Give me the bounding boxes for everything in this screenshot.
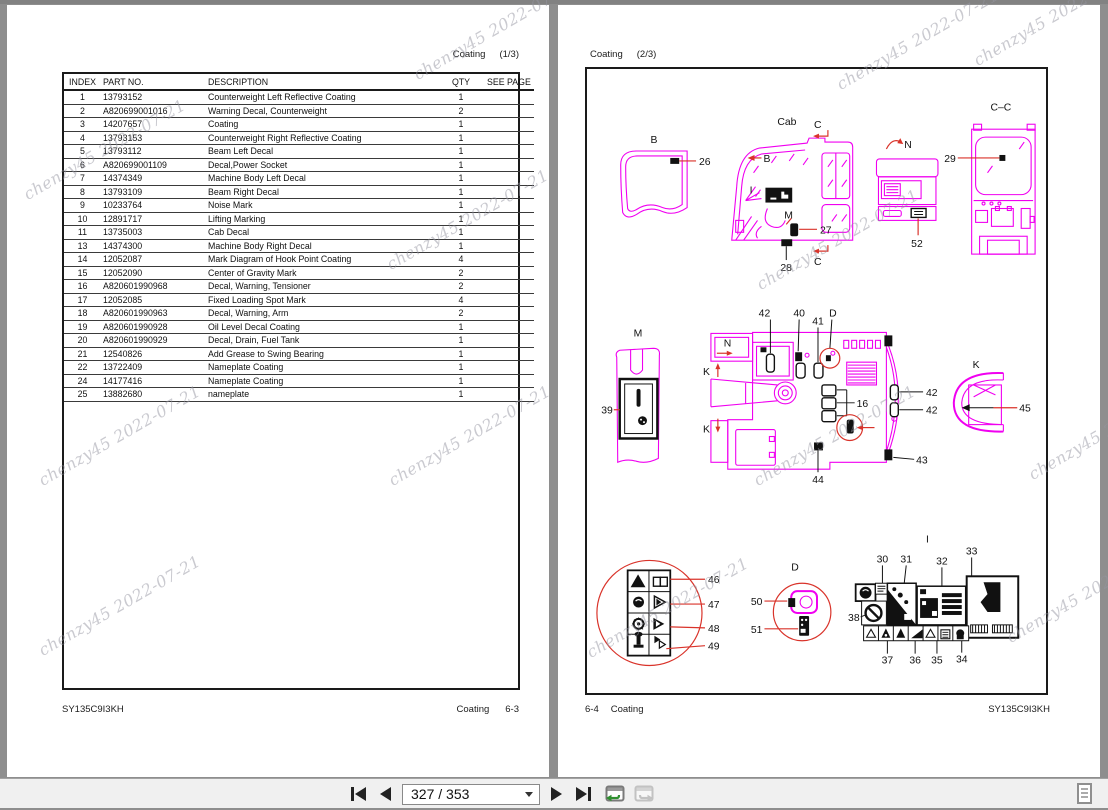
cell-index: 2 (64, 104, 101, 118)
svg-text:37: 37 (882, 656, 894, 667)
cell-qty: 2 (445, 307, 477, 321)
cell-see-page (477, 131, 534, 145)
svg-text:45: 45 (1019, 404, 1031, 415)
svg-text:M: M (784, 210, 793, 221)
cell-part-no: 13793153 (101, 131, 206, 145)
svg-text:K: K (703, 425, 710, 436)
cell-description: Beam Right Decal (206, 185, 445, 199)
svg-text:D: D (829, 309, 837, 320)
cell-description: Decal,Power Socket (206, 158, 445, 172)
cell-see-page (477, 158, 534, 172)
header-sheet-number: (1/3) (499, 49, 519, 60)
svg-text:C: C (814, 120, 822, 131)
cell-index: 25 (64, 388, 101, 402)
svg-text:N: N (904, 140, 912, 151)
cell-part-no: 13793109 (101, 185, 206, 199)
cell-part-no: A820601990929 (101, 334, 206, 348)
cell-see-page (477, 226, 534, 240)
table-row: 5 13793112 Beam Left Decal 1 (64, 145, 534, 159)
table-row: 22 13722409 Nameplate Coating 1 (64, 361, 534, 375)
cell-index: 21 (64, 347, 101, 361)
svg-text:33: 33 (966, 546, 978, 557)
cell-see-page (477, 320, 534, 334)
cell-description: Coating (206, 118, 445, 132)
cell-see-page (477, 266, 534, 280)
table-row: 20 A820601990929 Decal, Drain, Fuel Tank… (64, 334, 534, 348)
view-b-door: B 26 (621, 135, 711, 217)
left-footer-model: SY135C9I3KH (62, 704, 124, 715)
cell-part-no: 14207657 (101, 118, 206, 132)
cell-index: 11 (64, 226, 101, 240)
page-right: Coating(2/3) B 26 Cab (558, 5, 1100, 777)
cell-description: Counterweight Left Reflective Coating (206, 90, 445, 104)
cell-index: 18 (64, 307, 101, 321)
svg-text:K: K (703, 367, 710, 378)
svg-text:K: K (973, 360, 980, 371)
previous-page-button[interactable] (377, 784, 394, 804)
svg-text:51: 51 (751, 625, 763, 636)
svg-text:B: B (763, 154, 770, 165)
previous-view-button[interactable] (603, 785, 625, 804)
cell-description: Add Grease to Swing Bearing (206, 347, 445, 361)
page-number-combobox (402, 784, 540, 805)
view-top-machine: 42 40 41 D (703, 309, 938, 487)
cell-index: 24 (64, 374, 101, 388)
cell-index: 4 (64, 131, 101, 145)
table-row: 17 12052085 Fixed Loading Spot Mark 4 (64, 293, 534, 307)
cell-qty: 1 (445, 334, 477, 348)
svg-text:16: 16 (857, 399, 869, 410)
cell-part-no: 13722409 (101, 361, 206, 375)
svg-text:52: 52 (911, 239, 923, 250)
cell-see-page (477, 118, 534, 132)
cell-qty: 1 (445, 145, 477, 159)
pdf-viewer-canvas: Coating(1/3) INDEX PART NO. DESCRIPTION … (0, 0, 1108, 778)
cell-part-no: 12052085 (101, 293, 206, 307)
svg-text:42: 42 (926, 406, 938, 417)
cell-description: Lifting Marking (206, 212, 445, 226)
svg-text:48: 48 (708, 624, 720, 635)
cell-qty: 1 (445, 347, 477, 361)
cell-part-no: 12052090 (101, 266, 206, 280)
cell-part-no: A820699001016 (101, 104, 206, 118)
svg-text:I: I (926, 535, 929, 546)
cell-qty: 1 (445, 131, 477, 145)
right-footer-section: 6-4Coating (585, 704, 643, 715)
svg-text:41: 41 (812, 316, 824, 327)
cell-see-page (477, 172, 534, 186)
svg-text:32: 32 (936, 556, 948, 567)
cell-description: Machine Body Right Decal (206, 239, 445, 253)
cell-see-page (477, 199, 534, 213)
svg-text:C–C: C–C (990, 102, 1011, 113)
svg-text:N: N (724, 338, 732, 349)
detail-decal-sheet: 46 47 48 49 (597, 560, 720, 665)
cell-index: 13 (64, 239, 101, 253)
cell-qty: 1 (445, 172, 477, 186)
svg-text:38: 38 (848, 613, 860, 624)
svg-text:30: 30 (877, 554, 889, 565)
cell-part-no: 12052087 (101, 253, 206, 267)
detail-d: D 50 51 (751, 562, 831, 640)
table-row: 2 A820699001016 Warning Decal, Counterwe… (64, 104, 534, 118)
document-properties-button[interactable] (1076, 783, 1094, 810)
cell-description: Warning Decal, Counterweight (206, 104, 445, 118)
first-page-icon (351, 787, 354, 801)
table-row: 16 A820601990968 Decal, Warning, Tension… (64, 280, 534, 294)
cell-qty: 1 (445, 388, 477, 402)
cell-part-no: 12540826 (101, 347, 206, 361)
col-part-no: PART NO. (101, 74, 206, 90)
cell-see-page (477, 90, 534, 104)
table-row: 13 14374300 Machine Body Right Decal 1 (64, 239, 534, 253)
view-n-top: N 52 (876, 138, 937, 250)
cell-part-no: 14374349 (101, 172, 206, 186)
parts-table: INDEX PART NO. DESCRIPTION QTY SEE PAGE … (62, 72, 520, 690)
svg-text:27: 27 (820, 225, 832, 236)
cell-description: Mark Diagram of Hook Point Coating (206, 253, 445, 267)
cell-qty: 1 (445, 374, 477, 388)
cell-see-page (477, 334, 534, 348)
page-navigation (348, 782, 656, 806)
cell-description: Machine Body Left Decal (206, 172, 445, 186)
col-description: DESCRIPTION (206, 74, 445, 90)
cell-description: Center of Gravity Mark (206, 266, 445, 280)
table-row: 6 A820699001109 Decal,Power Socket 1 (64, 158, 534, 172)
detail-k: K 45 (954, 360, 1031, 431)
table-row: 4 13793153 Counterweight Right Reflectiv… (64, 131, 534, 145)
cell-qty: 1 (445, 226, 477, 240)
table-row: 14 12052087 Mark Diagram of Hook Point C… (64, 253, 534, 267)
svg-text:34: 34 (956, 655, 968, 666)
cell-qty: 1 (445, 320, 477, 334)
svg-text:49: 49 (708, 642, 720, 653)
parts-diagram-svg: B 26 Cab (587, 69, 1046, 693)
cell-see-page (477, 239, 534, 253)
cell-see-page (477, 347, 534, 361)
col-see-page: SEE PAGE (477, 74, 534, 90)
cell-part-no: 14374300 (101, 239, 206, 253)
view-c-c: C–C 29 (944, 102, 1035, 254)
cell-qty: 1 (445, 212, 477, 226)
svg-text:28: 28 (780, 263, 792, 274)
cell-index: 1 (64, 90, 101, 104)
cell-qty: 1 (445, 118, 477, 132)
cell-part-no: 13735003 (101, 226, 206, 240)
cell-index: 10 (64, 212, 101, 226)
cell-description: Beam Left Decal (206, 145, 445, 159)
header-section-label: Coating (590, 49, 623, 60)
cell-qty: 1 (445, 90, 477, 104)
cell-index: 15 (64, 266, 101, 280)
left-page-header: Coating(1/3) (453, 49, 519, 60)
next-view-icon (634, 785, 656, 804)
cell-qty: 1 (445, 158, 477, 172)
cell-description: nameplate (206, 388, 445, 402)
cell-index: 8 (64, 185, 101, 199)
cell-description: Decal, Drain, Fuel Tank (206, 334, 445, 348)
svg-text:43: 43 (916, 455, 928, 466)
cell-part-no: 13793112 (101, 145, 206, 159)
cell-description: Decal, Warning, Arm (206, 307, 445, 321)
svg-text:C: C (814, 257, 822, 268)
next-view-button[interactable] (634, 785, 656, 804)
table-row: 21 12540826 Add Grease to Swing Bearing … (64, 347, 534, 361)
col-index: INDEX (64, 74, 101, 90)
cell-description: Noise Mark (206, 199, 445, 213)
cell-qty: 2 (445, 280, 477, 294)
table-row: 24 14177416 Nameplate Coating 1 (64, 374, 534, 388)
last-page-button[interactable] (573, 784, 594, 804)
svg-text:B: B (650, 135, 657, 146)
cell-qty: 2 (445, 266, 477, 280)
last-page-icon (576, 787, 587, 801)
cell-qty: 1 (445, 239, 477, 253)
cell-see-page (477, 374, 534, 388)
table-row: 18 A820601990963 Decal, Warning, Arm 2 (64, 307, 534, 321)
svg-text:40: 40 (793, 309, 805, 320)
svg-text:31: 31 (900, 554, 912, 565)
cell-index: 14 (64, 253, 101, 267)
next-page-button[interactable] (548, 784, 565, 804)
cell-part-no: A820601990968 (101, 280, 206, 294)
svg-text:39: 39 (601, 406, 613, 417)
cell-see-page (477, 280, 534, 294)
right-footer-model: SY135C9I3KH (988, 704, 1050, 715)
table-row: 3 14207657 Coating 1 (64, 118, 534, 132)
svg-text:42: 42 (926, 388, 938, 399)
page-dropdown-caret-icon[interactable] (525, 792, 533, 797)
cell-see-page (477, 104, 534, 118)
left-footer-page-number: 6-3 (505, 704, 519, 715)
right-page-header: Coating(2/3) (590, 49, 656, 60)
cell-description: Fixed Loading Spot Mark (206, 293, 445, 307)
cell-index: 3 (64, 118, 101, 132)
cell-index: 6 (64, 158, 101, 172)
table-row: 7 14374349 Machine Body Left Decal 1 (64, 172, 534, 186)
cell-see-page (477, 185, 534, 199)
cell-description: Nameplate Coating (206, 374, 445, 388)
table-row: 11 13735003 Cab Decal 1 (64, 226, 534, 240)
cell-index: 22 (64, 361, 101, 375)
view-cab: Cab B (732, 117, 853, 274)
svg-text:35: 35 (931, 656, 943, 667)
cell-description: Cab Decal (206, 226, 445, 240)
svg-text:44: 44 (812, 475, 824, 486)
cell-part-no: A820699001109 (101, 158, 206, 172)
svg-text:36: 36 (909, 656, 921, 667)
previous-view-icon (603, 785, 625, 804)
cell-index: 5 (64, 145, 101, 159)
viewer-toolbar (0, 778, 1108, 808)
cell-qty: 1 (445, 361, 477, 375)
svg-text:26: 26 (699, 157, 711, 168)
page-number-input[interactable] (403, 786, 511, 802)
page-left: Coating(1/3) INDEX PART NO. DESCRIPTION … (7, 5, 549, 777)
cell-part-no: 10233764 (101, 199, 206, 213)
table-row: 9 10233764 Noise Mark 1 (64, 199, 534, 213)
cell-see-page (477, 212, 534, 226)
header-sheet-number: (2/3) (637, 49, 657, 60)
svg-text:D: D (791, 562, 799, 573)
detail-i: I (848, 535, 1018, 667)
cell-part-no: 13882680 (101, 388, 206, 402)
table-row: 1 13793152 Counterweight Left Reflective… (64, 90, 534, 104)
svg-text:Cab: Cab (777, 117, 796, 128)
table-row: 19 A820601990928 Oil Level Decal Coating… (64, 320, 534, 334)
cell-index: 19 (64, 320, 101, 334)
svg-text:29: 29 (944, 154, 956, 165)
cell-qty: 4 (445, 293, 477, 307)
parts-table-body: 1 13793152 Counterweight Left Reflective… (64, 90, 534, 401)
table-header-row: INDEX PART NO. DESCRIPTION QTY SEE PAGE (64, 74, 534, 90)
cell-part-no: 13793152 (101, 90, 206, 104)
cell-index: 17 (64, 293, 101, 307)
header-section-label: Coating (453, 49, 486, 60)
svg-text:46: 46 (708, 575, 720, 586)
detail-m: M 39 (601, 328, 659, 462)
cell-see-page (477, 293, 534, 307)
cell-index: 7 (64, 172, 101, 186)
cell-see-page (477, 307, 534, 321)
svg-text:I: I (750, 186, 753, 197)
cell-index: 9 (64, 199, 101, 213)
cell-part-no: A820601990963 (101, 307, 206, 321)
cell-description: Decal, Warning, Tensioner (206, 280, 445, 294)
document-icon (1076, 783, 1094, 805)
cell-description: Counterweight Right Reflective Coating (206, 131, 445, 145)
cell-part-no: 12891717 (101, 212, 206, 226)
cell-qty: 1 (445, 185, 477, 199)
cell-part-no: 14177416 (101, 374, 206, 388)
cell-see-page (477, 145, 534, 159)
cell-index: 16 (64, 280, 101, 294)
coating-diagram: B 26 Cab (585, 67, 1048, 695)
right-footer-page-number: 6-4 (585, 704, 599, 715)
table-row: 8 13793109 Beam Right Decal 1 (64, 185, 534, 199)
cell-part-no: A820601990928 (101, 320, 206, 334)
svg-text:47: 47 (708, 600, 720, 611)
svg-text:50: 50 (751, 597, 763, 608)
table-row: 25 13882680 nameplate 1 (64, 388, 534, 402)
col-qty: QTY (445, 74, 477, 90)
cell-qty: 1 (445, 199, 477, 213)
previous-page-icon (380, 787, 391, 801)
table-row: 10 12891717 Lifting Marking 1 (64, 212, 534, 226)
cell-qty: 2 (445, 104, 477, 118)
cell-index: 20 (64, 334, 101, 348)
first-page-button[interactable] (348, 784, 369, 804)
svg-text:M: M (634, 328, 643, 339)
cell-see-page (477, 388, 534, 402)
next-page-icon (551, 787, 562, 801)
cell-qty: 4 (445, 253, 477, 267)
cell-description: Oil Level Decal Coating (206, 320, 445, 334)
cell-see-page (477, 253, 534, 267)
table-row: 15 12052090 Center of Gravity Mark 2 (64, 266, 534, 280)
cell-see-page (477, 361, 534, 375)
cell-description: Nameplate Coating (206, 361, 445, 375)
svg-text:42: 42 (759, 309, 771, 320)
left-footer-section: Coating6-3 (457, 704, 519, 715)
